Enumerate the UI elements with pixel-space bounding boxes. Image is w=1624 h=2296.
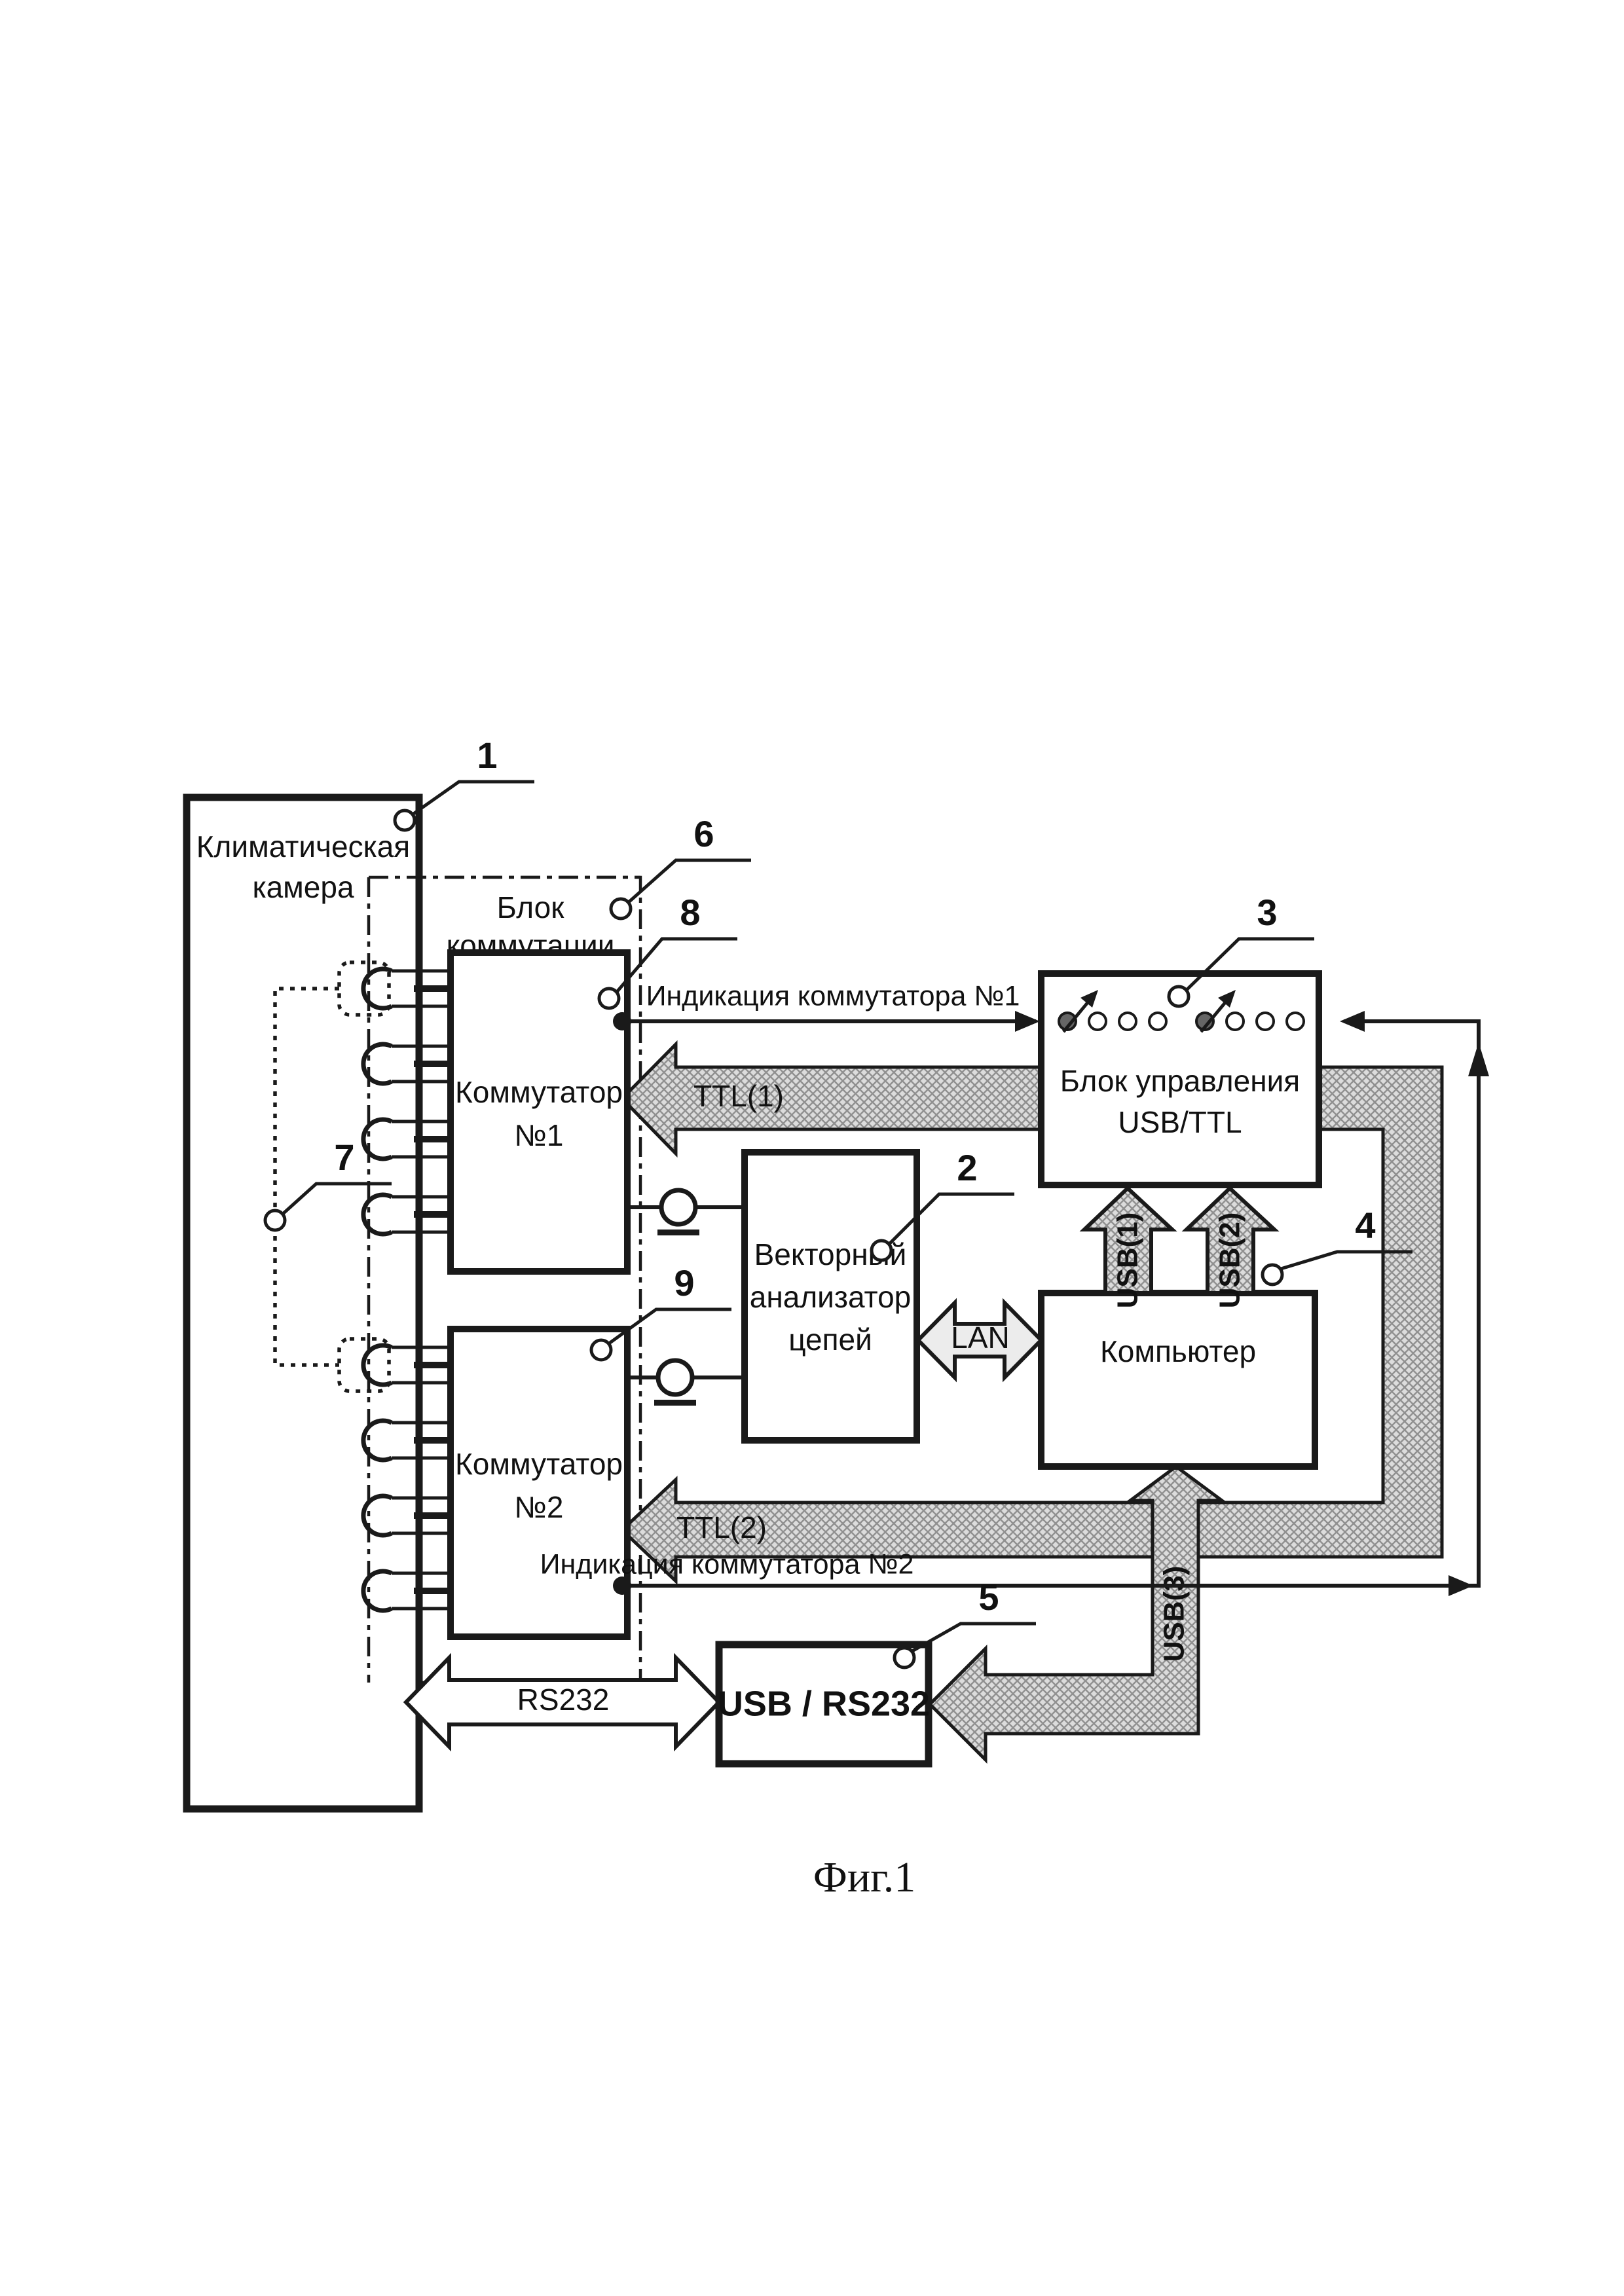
- coax-adapter-2: [654, 1360, 696, 1406]
- callout-6-number: 6: [693, 813, 714, 854]
- indication1-line: Индикация коммутатора №1: [613, 980, 1040, 1032]
- switch2-label-1: Коммутатор: [455, 1447, 623, 1481]
- led-4: [1149, 1013, 1166, 1030]
- control-unit-label-1: Блок управления: [1060, 1064, 1300, 1098]
- rs232-label: RS232: [517, 1683, 610, 1717]
- led-8: [1287, 1013, 1304, 1030]
- callout-3-number: 3: [1257, 892, 1277, 933]
- usb3-label: USB(3): [1158, 1566, 1190, 1662]
- vna-label-3: цепей: [788, 1322, 872, 1357]
- switch2-box: Коммутатор №2: [451, 1329, 627, 1637]
- rs232-arrow: RS232: [406, 1658, 719, 1747]
- climate-chamber-label-2: камера: [252, 870, 354, 904]
- ttl1-label: TTL(1): [693, 1079, 784, 1113]
- led-7: [1257, 1013, 1274, 1030]
- computer-label: Компьютер: [1100, 1334, 1256, 1368]
- climate-chamber-box: Климатическая камера: [187, 797, 419, 1809]
- control-unit-label-2: USB/TTL: [1118, 1105, 1242, 1139]
- led-3: [1119, 1013, 1136, 1030]
- usb1-label: USB(1): [1112, 1212, 1144, 1309]
- indication2-corner-arrowhead: [1449, 1575, 1473, 1596]
- indication1-label: Индикация коммутатора №1: [646, 980, 1020, 1011]
- callout-7-number: 7: [334, 1137, 354, 1178]
- callout-1-number: 1: [477, 735, 497, 776]
- indication2-up-arrowhead: [1468, 1042, 1489, 1076]
- usb-rs232-label: USB / RS232: [718, 1684, 930, 1723]
- switch1-label-1: Коммутатор: [455, 1075, 623, 1109]
- switch1-label-2: №1: [515, 1118, 564, 1152]
- vna-box: Векторный анализатор цепей: [627, 1152, 917, 1440]
- computer-box: Компьютер: [1041, 1293, 1315, 1467]
- indication2-label: Индикация коммутатора №2: [540, 1548, 914, 1580]
- callout-9-number: 9: [674, 1262, 694, 1303]
- diagram-canvas: Климатическая камера Блок коммутации Ком…: [0, 0, 1624, 2296]
- callout-5-number: 5: [978, 1576, 999, 1618]
- callout-8-number: 8: [680, 892, 700, 933]
- callout-2-number: 2: [957, 1147, 977, 1188]
- indication2-end-arrowhead: [1340, 1011, 1365, 1032]
- vna-label-2: анализатор: [750, 1280, 912, 1314]
- lan-label: LAN: [951, 1321, 1009, 1355]
- figure-caption: Фиг.1: [813, 1853, 916, 1901]
- komm-unit-label-1: Блок: [497, 890, 565, 924]
- led-6: [1227, 1013, 1244, 1030]
- switch2-label-2: №2: [515, 1490, 564, 1524]
- coax-adapter-1: [657, 1190, 699, 1235]
- lan-arrow: LAN: [918, 1303, 1041, 1377]
- patent-figure-page: Климатическая камера Блок коммутации Ком…: [0, 0, 1624, 2296]
- led-2: [1089, 1013, 1106, 1030]
- usb2-label: USB(2): [1214, 1212, 1246, 1309]
- ttl2-label: TTL(2): [676, 1510, 767, 1544]
- callout-4-number: 4: [1355, 1205, 1375, 1246]
- climate-chamber-label-1: Климатическая: [196, 829, 410, 864]
- indication1-arrowhead: [1015, 1011, 1040, 1032]
